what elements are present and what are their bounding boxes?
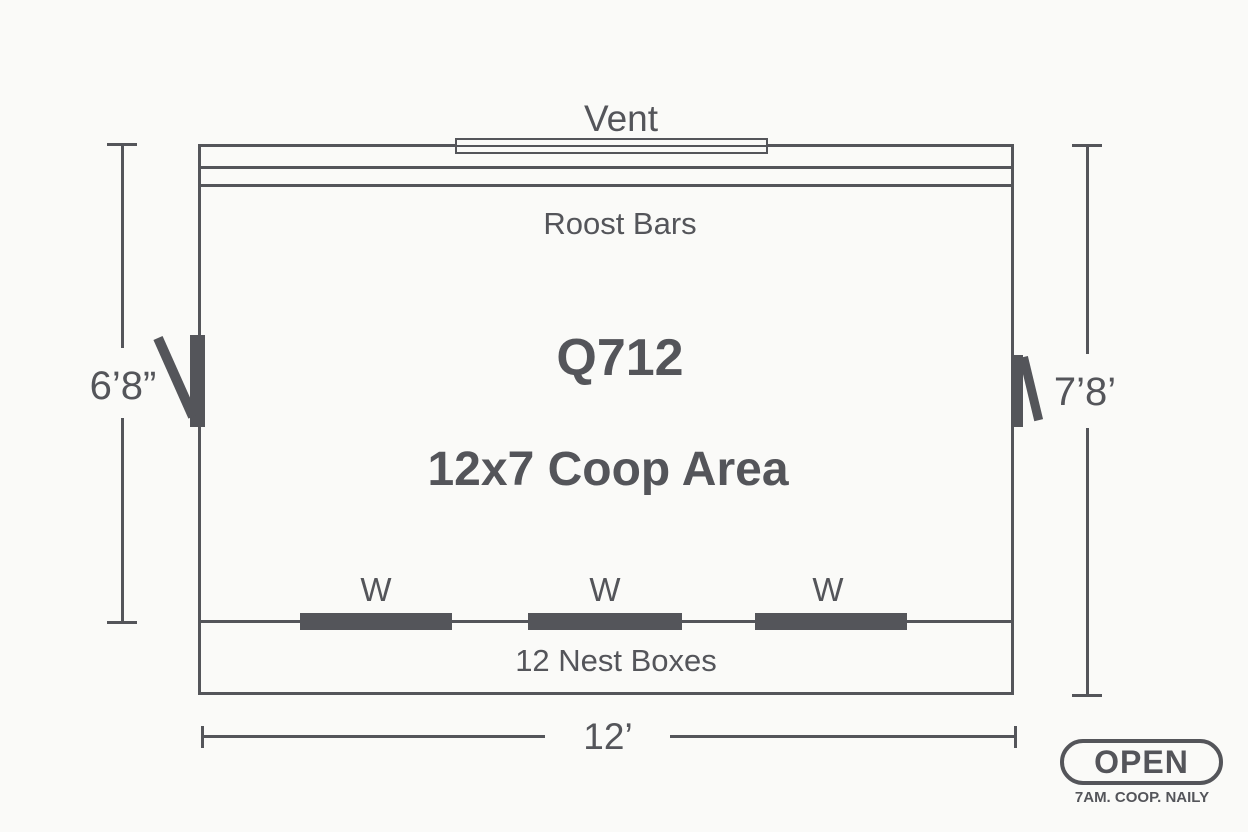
left-dimension-cap-bottom xyxy=(107,621,137,624)
bottom-dimension-line-right xyxy=(670,735,1017,738)
nest-boxes-label: 12 Nest Boxes xyxy=(466,645,766,676)
left-dimension-line-upper xyxy=(121,143,124,348)
open-badge-subtitle: 7AM. COOP. NAILY xyxy=(1056,790,1228,805)
window-label-1: W xyxy=(346,573,406,606)
coop-floor-plan: Vent Roost Bars Q712 12x7 Coop Area W W … xyxy=(0,0,1248,832)
right-dimension-label: 7’8’ xyxy=(1025,372,1145,412)
right-dimension-cap-bottom xyxy=(1072,694,1102,697)
left-dimension-label: 6’8” xyxy=(63,366,183,406)
left-dimension-line-lower xyxy=(121,418,124,624)
bottom-dimension-cap-right xyxy=(1014,726,1017,748)
vent-label: Vent xyxy=(521,100,721,137)
window-label-2: W xyxy=(575,573,635,606)
open-badge-title: OPEN xyxy=(1094,746,1189,778)
roost-bars-label: Roost Bars xyxy=(470,208,770,239)
window-symbol-2 xyxy=(528,613,682,630)
model-number-label: Q712 xyxy=(420,332,820,384)
vent-symbol xyxy=(455,138,768,154)
roost-bar-line-1 xyxy=(201,166,1011,169)
window-symbol-3 xyxy=(755,613,907,630)
bottom-dimension-label: 12’ xyxy=(548,718,668,755)
window-label-3: W xyxy=(798,573,858,606)
right-dimension-line-upper xyxy=(1086,144,1089,354)
window-symbol-1 xyxy=(300,613,452,630)
right-dimension-line-lower xyxy=(1086,428,1089,696)
roost-bar-line-2 xyxy=(201,184,1011,187)
coop-area-label: 12x7 Coop Area xyxy=(368,446,848,494)
vent-symbol-midline xyxy=(457,145,766,147)
bottom-dimension-line-left xyxy=(201,735,545,738)
open-badge: OPEN xyxy=(1060,739,1223,785)
